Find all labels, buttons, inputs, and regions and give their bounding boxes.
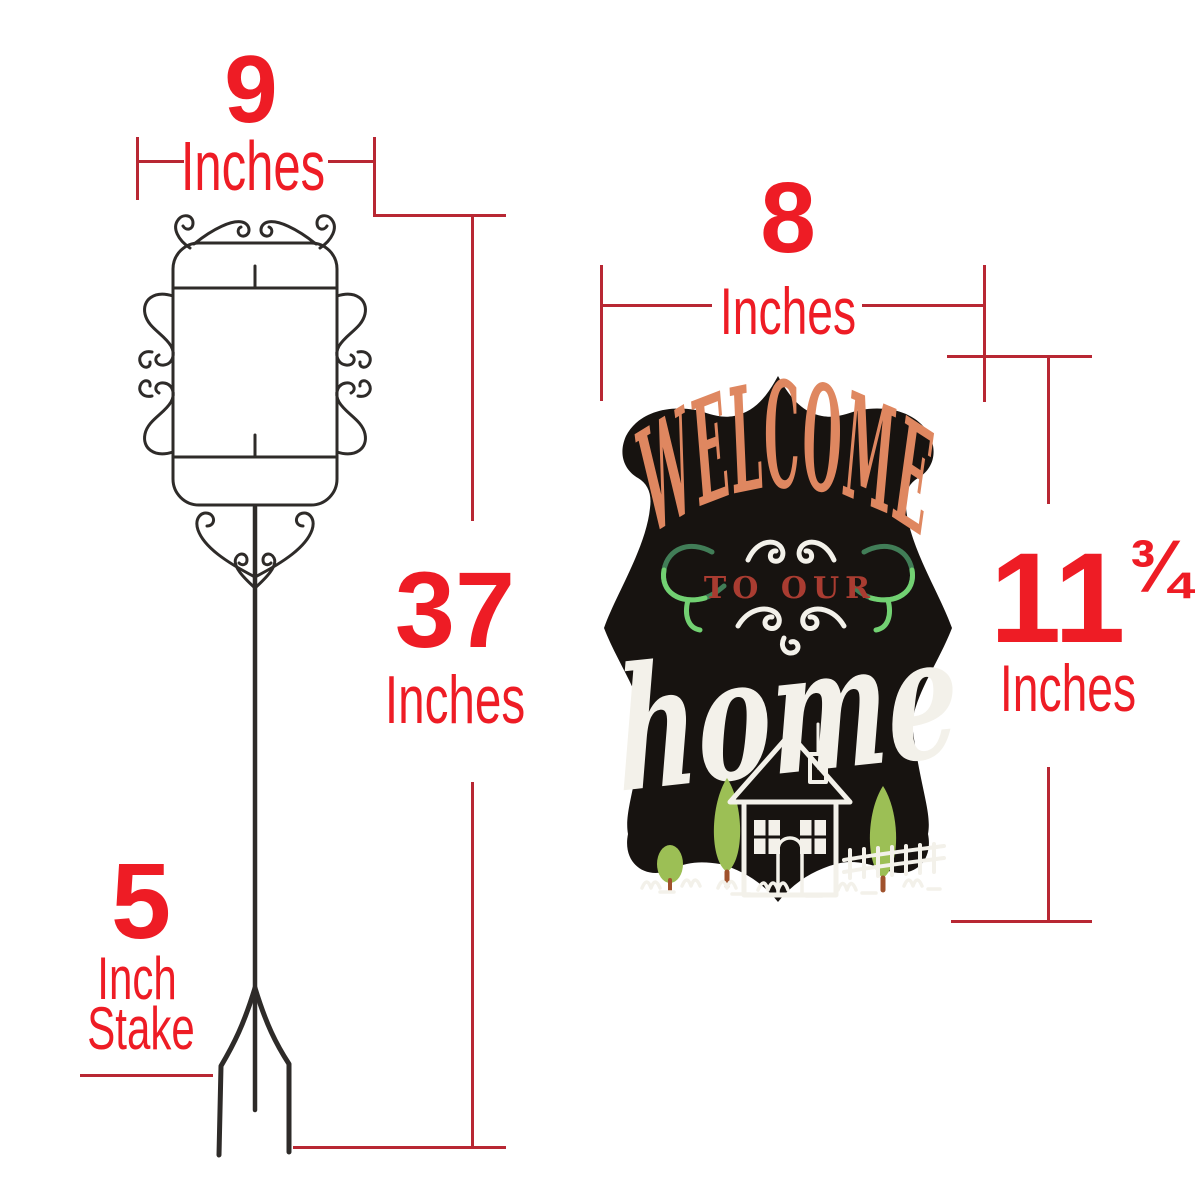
home-text: home [613,596,958,831]
stake-length-value: 5 [111,847,171,955]
to-our-text: TO OUR [704,571,876,606]
height-dim-top-connector [373,214,506,217]
sign-height-dim-top-bar [947,355,1092,358]
sign-width-unit: Inches [720,278,856,344]
stand-width-value: 9 [224,42,277,138]
sign-height-dim-line-lower [1047,767,1050,922]
sign-height-value-group: 11¾ [990,535,1190,663]
stake-prong-left [219,988,255,1155]
product-dimension-diagram: 9 Inches 37 Inches 5 Inch Stake 8 Inches… [0,0,1200,1200]
width-dim-right-tick [373,137,376,217]
stake-length-word: Stake [87,999,194,1059]
bush-icon [657,845,683,883]
sign-width-value: 8 [760,168,816,268]
home-script-group: home [613,596,958,831]
sign-width-dim-line-left [602,304,712,307]
sign-height-value: 11 [990,527,1125,670]
sign-height-dim-bottom-bar [951,920,1092,923]
height-dim-bottom-connector [293,1146,506,1149]
welcome-sign-illustration: WELCOME TO OUR home [598,372,958,906]
stand-width-unit: Inches [181,131,325,201]
sign-width-dim-line-right [862,304,984,307]
stand-height-value: 37 [395,556,515,664]
width-dim-line-right [328,160,375,163]
sign-height-fraction: ¾ [1128,525,1190,608]
height-dim-line-upper [471,216,474,521]
width-dim-left-tick [136,137,139,200]
width-dim-line-left [138,160,184,163]
sign-height-dim-line-upper [1047,357,1050,504]
stake-pole-group [219,507,289,1155]
stand-height-unit: Inches [385,666,525,734]
sign-height-unit: Inches [1000,655,1136,721]
sign-width-dim-right-tick [983,265,986,402]
stake-dim-line [80,1074,213,1077]
stake-prong-right [255,988,289,1152]
height-dim-line-lower [471,782,474,1148]
